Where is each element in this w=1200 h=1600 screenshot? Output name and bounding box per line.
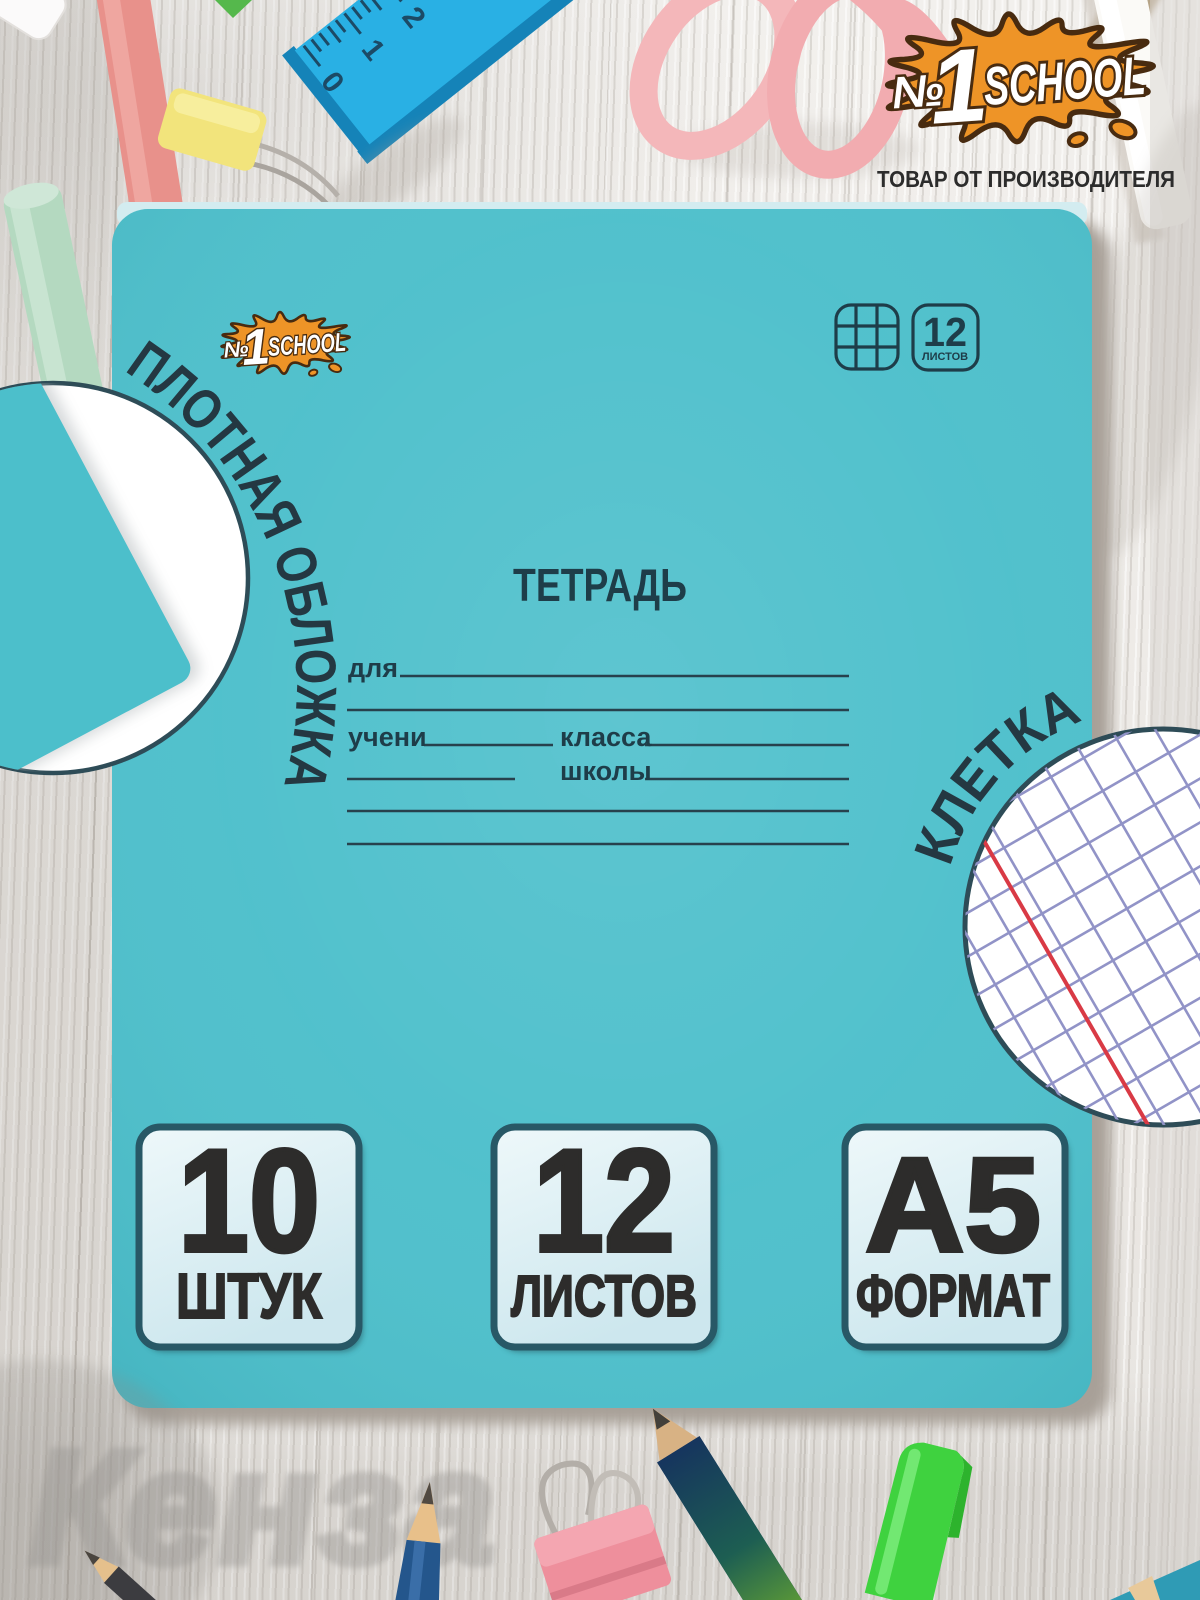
svg-text:ТОВАР ОТ ПРОИЗВОДИТЕЛЯ: ТОВАР ОТ ПРОИЗВОДИТЕЛЯ xyxy=(877,166,1175,192)
svg-text:ЛИСТОВ: ЛИСТОВ xyxy=(511,1264,697,1329)
svg-text:учени: учени xyxy=(348,722,427,752)
svg-text:А5: А5 xyxy=(865,1131,1041,1280)
svg-text:10: 10 xyxy=(178,1119,320,1282)
svg-text:ШТУК: ШТУК xyxy=(176,1260,323,1332)
svg-text:ЛИСТОВ: ЛИСТОВ xyxy=(922,351,968,363)
svg-text:класса: класса xyxy=(560,722,652,752)
svg-text:12: 12 xyxy=(923,309,967,355)
svg-text:школы: школы xyxy=(560,756,652,786)
svg-text:ТЕТРАДЬ: ТЕТРАДЬ xyxy=(513,559,687,611)
svg-text:ФОРМАТ: ФОРМАТ xyxy=(856,1263,1050,1329)
svg-text:12: 12 xyxy=(533,1119,675,1282)
svg-text:для: для xyxy=(348,653,398,683)
